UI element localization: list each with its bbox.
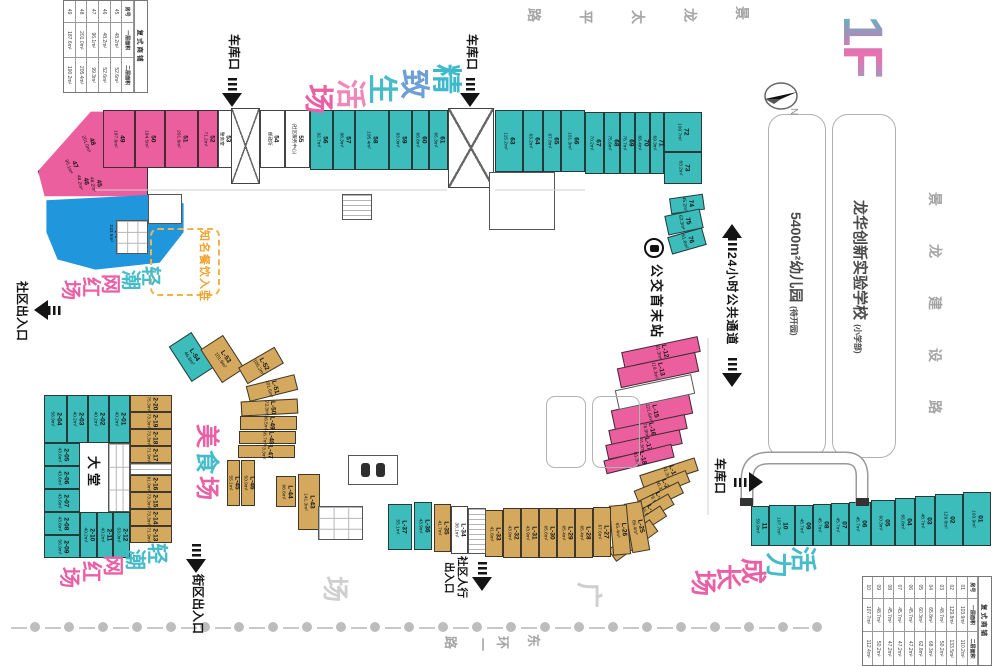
unit-L-50: L-5073.3m² [241, 399, 299, 417]
legend-cell: 133.5m² [947, 631, 956, 665]
unit-L-31: L-3143.9m² [521, 508, 539, 558]
street-dot [472, 622, 482, 632]
street-dot [404, 622, 414, 632]
misc-plain-box [148, 194, 182, 224]
unit-04: 0465.8m² [895, 498, 915, 546]
street-entrance-arrow [186, 544, 206, 573]
legend-cell: 45 [111, 1, 122, 22]
legend-cell: 02 [947, 577, 956, 598]
legend-header-row: 房号一层面积二层面积 [122, 1, 134, 92]
misc-round-box [546, 396, 586, 468]
legend-cell: 45.7m² [905, 598, 914, 632]
legend-cell: 47.2m² [894, 631, 903, 665]
unit-59: 5993.0m² [389, 110, 412, 170]
unit-L-29: L-2965.4m² [557, 508, 575, 558]
road-right-char: 景 [928, 192, 942, 206]
legend-cell: 48.2m² [99, 22, 110, 57]
legend-cell: 99.3m² [87, 57, 98, 92]
unit-2-13: 2-1371.9m² [130, 526, 172, 543]
street-dash [487, 627, 503, 629]
zone-qingchao-bottom-char: 红 [80, 561, 101, 582]
legend-cell: 112.4m² [863, 631, 872, 665]
unit-L-35: L-3541.7m² [434, 504, 451, 552]
legend-cell: 二层面积 [122, 57, 133, 92]
road-top-char: 路 [527, 8, 541, 22]
unit-2-08: 2-0843.6m² [44, 512, 80, 535]
street-dot [132, 622, 142, 632]
street-dot [336, 622, 346, 632]
road-bottom-char: 一 [476, 638, 489, 651]
legend-cell: 09 [873, 577, 882, 598]
legend-cell: 103.9m² [957, 598, 966, 632]
street-dash [317, 627, 333, 629]
legend-cell: 45.7m² [894, 598, 903, 632]
legend-cell: 47 [87, 1, 98, 22]
unit-10: 10107.7m² [769, 505, 795, 546]
misc-round-box [592, 396, 640, 468]
floor-logo: 1F [824, 6, 904, 86]
community-entrance-label: 社区出入口 [14, 281, 31, 341]
unit-03: 0348.7m² [915, 496, 935, 546]
legend-row: 4648.2m²52.6m² [99, 1, 111, 92]
street-dash [45, 627, 61, 629]
street-dash [249, 627, 265, 629]
street-dot [506, 622, 516, 632]
misc-grid-box [108, 443, 130, 512]
street-dash [453, 627, 469, 629]
garage-entrance-label-1: 车库口 [226, 34, 243, 70]
legend-row: 10107.7m²112.4m² [863, 577, 873, 665]
legend-row: 01103.9m²110.2m² [957, 577, 967, 665]
plaza-watermark-char: 广 [576, 582, 602, 608]
legend-row: 0845.7m²47.2m² [884, 577, 894, 665]
unit-L-27: L-2767.6m² [593, 507, 611, 557]
legend-table-top-left: 复式商铺房号一层面积二层面积4548.2m²52.6m²4648.2m²52.6… [63, 0, 148, 93]
road-top-char: 平 [579, 10, 593, 24]
street-dot [438, 622, 448, 632]
unit-53: 53警务室 [218, 110, 232, 168]
legend-cell: 187.6m² [64, 22, 75, 57]
legend-row: 49187.6m²190.2m² [64, 1, 76, 92]
street-dot [64, 622, 74, 632]
zone-meishi-char: 美 [194, 424, 218, 448]
street-dot [812, 622, 822, 632]
zone-qingchao-bottom-char: 潮 [124, 549, 145, 570]
unit-05: 0560.3m² [871, 500, 895, 546]
unit-L-49: L-4986.5m² [240, 416, 297, 430]
legend-cell: 07 [894, 577, 903, 598]
street-dot [608, 622, 618, 632]
street-dot [166, 622, 176, 632]
street-dash [351, 627, 367, 629]
legend-row: 4796.1m²99.3m² [87, 1, 99, 92]
legend-cell: 47.2m² [905, 631, 914, 665]
duct-outline [747, 458, 862, 505]
unit-02: 02129.8m² [935, 494, 963, 546]
legend-row: 0465.8m²68.3m² [926, 577, 936, 665]
unit-68: 6875.6m² [604, 112, 620, 174]
unit-2-19: 2-1973.3m² [130, 412, 172, 429]
misc-grid-box [318, 506, 363, 540]
misc-plain-box [489, 172, 555, 230]
garage-entrance-label-2: 车库口 [464, 34, 481, 70]
unit-72: 72100.7m² [664, 112, 702, 152]
misc-ramp-box [231, 108, 260, 184]
unit-L-36: L-3643.9m² [414, 502, 432, 550]
legend-row: 4548.2m²52.6m² [111, 1, 123, 92]
unit-L-34: L-3438.1m² [451, 506, 468, 554]
misc-vlines-box [342, 194, 372, 220]
legend-cell: 52.6m² [111, 57, 122, 92]
road-top-char: 景 [735, 6, 749, 20]
zone-qingchao-top-char: 场 [60, 280, 80, 300]
legend-cell: 48.2m² [111, 22, 122, 57]
unit-06: 0645.7m² [849, 502, 871, 546]
unit-69: 6976.7m² [620, 112, 635, 174]
garage-arrow-1 [222, 78, 242, 107]
unit-54: 54邮政所 [260, 110, 285, 168]
legend-cell: 107.7m² [863, 598, 872, 632]
zone-qingchao-top-char: 轻 [140, 266, 160, 286]
street-dash [725, 627, 741, 629]
misc-grid-box [116, 220, 148, 254]
legend-title: 复式商铺 [134, 1, 147, 92]
road-right-char: 路 [928, 400, 942, 414]
community-entrance-arrow [34, 300, 63, 320]
floor-plan-1f: N 5400m²幼儿园 (待开园) 龙华创新实验学校 (小学部) 1F 车库口 … [0, 0, 1000, 666]
street-dash [385, 627, 401, 629]
zone-jingzhi-shenghuo-char: 活 [334, 79, 364, 109]
road-right-char: 龙 [928, 244, 942, 258]
legend-row: 0645.7m²47.2m² [905, 577, 915, 665]
unit-2-09: 2-0956.9m² [44, 535, 80, 558]
unit-60: 6068.8m² [412, 110, 429, 170]
legend-cell: 48 [76, 1, 87, 22]
unit-57: 5798.3m² [333, 110, 355, 170]
legend-row: 0348.7m²50.2m² [936, 577, 946, 665]
legend-cell: 46 [99, 1, 110, 22]
pedestrian-entrance-arrow [472, 562, 492, 591]
bus-terminal-label: 公交首末站 [648, 264, 667, 339]
unit-55: 55(社区服务中心) [285, 110, 310, 168]
street-dash [623, 627, 639, 629]
street-dash [283, 627, 299, 629]
street-dot [744, 622, 754, 632]
unit-2-11: 2-1140.2m² [97, 512, 113, 558]
unit-2-15: 2-1573.3m² [130, 492, 172, 509]
unit-11: 1159.9m² [751, 506, 769, 546]
street-dash [555, 627, 571, 629]
legend-cell: 129.8m² [947, 598, 956, 632]
plaza-watermark-char: 场 [322, 576, 348, 602]
zone-qingchao-top-char: 网 [100, 274, 120, 294]
zone-jingzhi-shenghuo-char: 精 [430, 64, 460, 94]
zone-jingzhi-shenghuo-char: 场 [302, 84, 332, 114]
misc-wc-box [348, 455, 398, 485]
unit-2-18: 2-1873.3m² [130, 429, 172, 446]
duct-cap-left [740, 498, 753, 506]
zone-huoli-char: 成 [740, 558, 766, 584]
unit-2-14: 2-1473.3m² [130, 509, 172, 526]
unit-L-28: L-2865.4m² [575, 508, 593, 558]
unit-L-37: L-3755.1m² [388, 504, 412, 550]
legend-cell: 48.7m² [936, 598, 945, 632]
street-dot [540, 622, 550, 632]
unit-2-06: 2-0643.6m² [44, 466, 80, 489]
zone-jingzhi-shenghuo-char: 致 [398, 69, 428, 99]
street-dash [759, 627, 775, 629]
legend-cell: 房号 [968, 577, 977, 598]
passage-arrow-down [722, 358, 742, 387]
unit-2-01: 2-0140.2m² [109, 395, 130, 443]
street-dot [30, 622, 40, 632]
compass-icon: N [765, 83, 799, 115]
unit-2-03: 2-0340.2m² [67, 395, 88, 443]
street-dot [268, 622, 278, 632]
unit-2-07: 2-0743.6m² [44, 489, 80, 512]
legend-cell: 05 [915, 577, 924, 598]
street-dash [793, 627, 809, 629]
legend-cell: 47.2m² [884, 631, 893, 665]
legend-cell: 52.6m² [99, 57, 110, 92]
primary-school-label: 龙华创新实验学校 (小学部) [850, 200, 871, 354]
street-dot [676, 622, 686, 632]
legend-cell: 190.2m² [64, 57, 75, 92]
street-dot [710, 622, 720, 632]
unit-73: 7383.2m² [664, 152, 702, 184]
legend-cell: 06 [905, 577, 914, 598]
legend-cell: 50.2m² [936, 631, 945, 665]
legend-row: 48201.0m²205.4m² [76, 1, 88, 92]
legend-cell: 一层面积 [122, 22, 133, 57]
legend-row: 0560.3m²62.8m² [915, 577, 925, 665]
street-dash [521, 627, 537, 629]
zone-qingchao-bottom-char: 场 [58, 567, 79, 588]
street-dot [234, 622, 244, 632]
legend-cell: 68.3m² [926, 631, 935, 665]
legend-cell: 10 [863, 577, 872, 598]
misc-vlines-box [468, 508, 486, 554]
legend-cell: 48.7m² [873, 598, 882, 632]
legend-cell: 45.7m² [884, 598, 893, 632]
unit-2-16: 2-1691.0m² [130, 475, 172, 492]
zone-meishi-char: 场 [194, 476, 218, 500]
legend-table: 复式商铺房号一层面积二层面积01103.9m²110.2m²02129.8m²1… [862, 576, 992, 666]
pedestrian-entrance-label-1: 社区人行 [455, 556, 470, 598]
road-right-char: 建 [928, 296, 942, 310]
legend-row: 0745.7m²47.2m² [894, 577, 904, 665]
unit-2-05: 2-0543.6m² [44, 443, 80, 466]
legend-cell: 08 [884, 577, 893, 598]
unit-L-45: L-4555.1m² [227, 460, 240, 506]
unit-07: 0745.7m² [831, 503, 849, 546]
legend-cell: 96.1m² [87, 22, 98, 57]
unit-2-20: 2-2075.3m² [130, 395, 172, 412]
unit-L-53: L-53101.9m² [200, 335, 244, 383]
unit-61: 6165.3m² [429, 110, 448, 170]
zone-jingzhi-shenghuo-char: 生 [366, 74, 396, 104]
road-bottom-char: 路 [444, 636, 457, 649]
unit-09: 0948.7m² [795, 505, 813, 546]
street-dash [215, 627, 231, 629]
legend-cell: 03 [936, 577, 945, 598]
street-dash [11, 627, 27, 629]
unit-01: 01103.9m² [963, 492, 991, 546]
unit-L-43: L-43141.3m² [298, 474, 320, 530]
street-dash [113, 627, 129, 629]
zone-huoli-char: 活 [790, 546, 816, 572]
legend-table-bottom-right: 复式商铺房号一层面积二层面积01103.9m²110.2m²02129.8m²1… [862, 576, 992, 666]
legend-row: 0948.7m²50.2m² [873, 577, 883, 665]
passage-arrow-up [722, 224, 742, 253]
legend-cell: 50.2m² [873, 631, 882, 665]
zone-huoli-char: 力 [765, 552, 791, 578]
misc-vlines-box [130, 463, 172, 475]
legend-cell: 62.8m² [915, 631, 924, 665]
road-bottom-char: 环 [496, 636, 509, 649]
street-entrance-label: 街区出入口 [190, 574, 207, 634]
unit-50: 50194.5m² [135, 110, 165, 168]
unit-70: 7066.4m² [635, 112, 650, 174]
unit-L-33: L-3341.6m² [485, 510, 503, 557]
unit-L-30: L-3065.6m² [539, 508, 557, 558]
street-dot [98, 622, 108, 632]
bus-icon [644, 238, 664, 258]
unit-2-04: 2-0456.9m² [44, 395, 67, 443]
legend-cell: 房号 [122, 1, 133, 22]
unit-2-17: 2-1771.9m² [130, 446, 172, 463]
garage-entrance-label-3: 车库口 [712, 458, 729, 494]
zone-meishi-char: 食 [194, 450, 218, 474]
restaurant-callout-label: 知名餐饮入驻 [197, 230, 213, 302]
unit-64: 6463.2m² [523, 110, 543, 172]
street-dash [657, 627, 673, 629]
street-dash [419, 627, 435, 629]
street-dot [370, 622, 380, 632]
legend-cell: 一层面积 [968, 598, 977, 632]
zone-qingchao-top-char: 红 [80, 277, 100, 297]
kindergarten-label: 5400m²幼儿园 (待开园) [786, 212, 806, 335]
street-dot [778, 622, 788, 632]
unit-58: 58105.4m² [355, 110, 389, 170]
legend-header-row: 房号一层面积二层面积 [968, 577, 978, 665]
unit-2-02: 2-0240.2m² [88, 395, 109, 443]
unit-71: 7169.3m² [650, 112, 664, 174]
legend-cell: 04 [926, 577, 935, 598]
public-passage-label: 24小时公共通道 [724, 252, 741, 345]
unit-08: 0845.7m² [813, 504, 831, 546]
road-top-char: 龙 [683, 8, 697, 22]
road-top-char: 太 [631, 10, 645, 24]
unit-51: 51201.6m² [165, 110, 198, 168]
legend-cell: 60.3m² [915, 598, 924, 632]
street-dot [302, 622, 312, 632]
zone-qingchao-bottom-char: 轻 [146, 543, 167, 564]
unit-L-47: L-4773.3m² [238, 445, 295, 458]
street-dot [574, 622, 584, 632]
unit-L-46: L-4650.9m² [241, 460, 255, 506]
legend-cell: 49 [64, 1, 75, 22]
street-dash [691, 627, 707, 629]
unit-67: 6770.2m² [585, 112, 604, 174]
zone-qingchao-top-char: 潮 [120, 270, 140, 290]
unit-52: 5271.2m² [198, 110, 218, 168]
road-right-char: 设 [928, 348, 942, 362]
zone-huoli-char: 长 [715, 564, 741, 590]
garage-arrow-2 [460, 78, 480, 107]
unit-L-32: L-3243.9m² [503, 508, 521, 558]
garage-arrow-3 [734, 472, 763, 492]
legend-table: 复式商铺房号一层面积二层面积4548.2m²52.6m²4648.2m²52.6… [63, 0, 148, 93]
legend-cell: 01 [957, 577, 966, 598]
street-dash [79, 627, 95, 629]
road-bottom-char: 东 [527, 634, 540, 647]
unit-L-48: L-4856.7m² [239, 431, 296, 444]
misc-ramp-box [448, 108, 494, 188]
unit-63: 63115.2m² [495, 110, 523, 172]
street-dash [147, 627, 163, 629]
legend-cell: 201.0m² [76, 22, 87, 57]
unit-66: 66101.3m² [561, 110, 585, 172]
unit-56: 5692.7m² [310, 110, 333, 170]
legend-title: 复式商铺 [978, 577, 991, 665]
pedestrian-entrance-label-2: 出入口 [442, 562, 457, 594]
zone-qingchao-bottom-char: 网 [102, 555, 123, 576]
legend-cell: 110.2m² [957, 631, 966, 665]
unit-2-10: 2-1040.2m² [80, 512, 97, 558]
legend-cell: 65.8m² [926, 598, 935, 632]
unit-65: 6567.8m² [543, 110, 561, 172]
legend-cell: 二层面积 [968, 631, 977, 665]
street-dot [642, 622, 652, 632]
street-dash [589, 627, 605, 629]
lobby-label: 大堂 [85, 456, 104, 490]
zone-huoli-char: 场 [690, 570, 716, 596]
legend-cell: 205.4m² [76, 57, 87, 92]
duct-inner [747, 458, 862, 505]
unit-L-44: L-4466.6m² [276, 476, 296, 507]
legend-row: 02129.8m²133.5m² [947, 577, 957, 665]
